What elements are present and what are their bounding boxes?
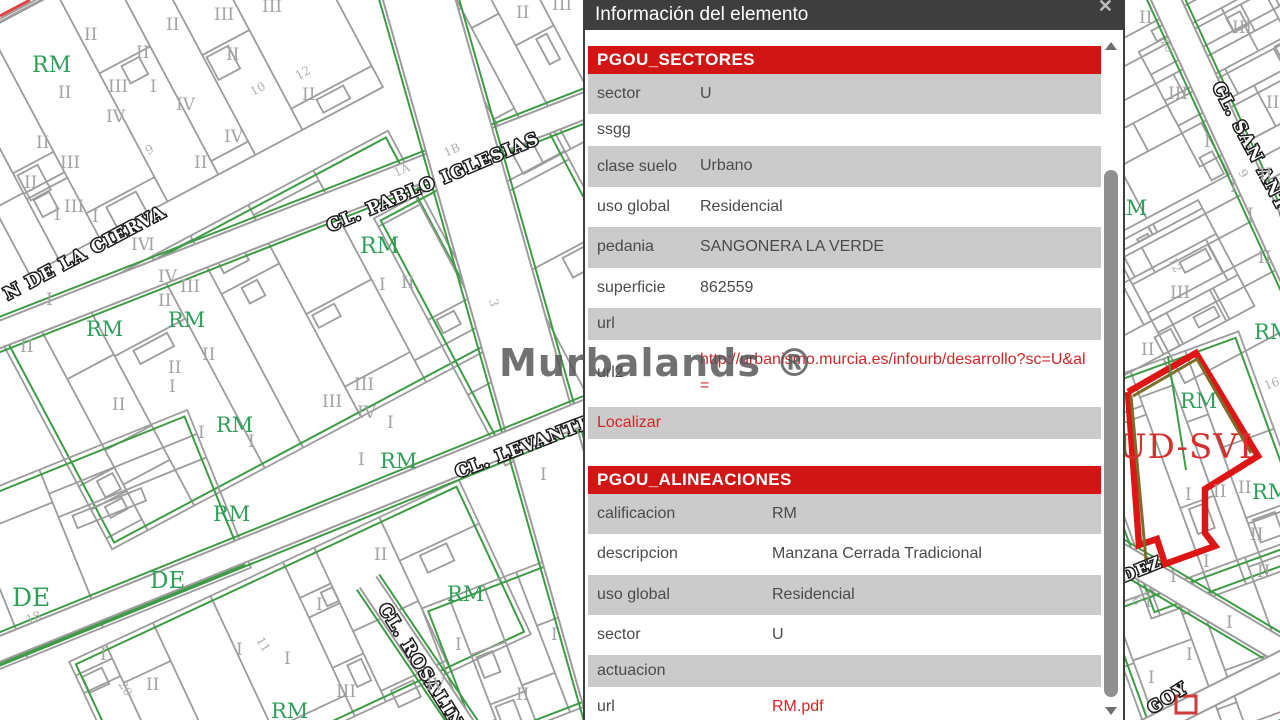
street-number: 6	[1129, 594, 1145, 608]
parcel-numeral: II	[1139, 8, 1152, 28]
parcel-numeral: I	[1247, 205, 1254, 225]
parcel-numeral: II	[168, 358, 181, 378]
info-row: clase sueloUrbano	[588, 146, 1101, 186]
section-header: PGOU_SECTORES	[588, 46, 1101, 74]
parcel-numeral: III	[354, 375, 374, 395]
street-number: 16	[1262, 374, 1280, 392]
street-number: 11	[253, 634, 273, 654]
row-label: clase suelo	[597, 158, 700, 176]
parcel-numeral: I	[100, 645, 107, 665]
street-label: CL. ROSALINDA	[374, 600, 483, 720]
parcel-numeral: II	[516, 685, 529, 705]
panel-content: PGOU_SECTORESsectorUssggclase sueloUrban…	[585, 30, 1101, 720]
parcel-numeral: III	[214, 5, 234, 25]
row-value: U	[772, 622, 1093, 648]
parcel-numeral: IV	[176, 95, 196, 115]
parcel-numeral: I	[198, 423, 205, 443]
info-panel: Información del elemento ✕ PGOU_SECTORES…	[583, 0, 1125, 720]
parcel-numeral: III	[336, 682, 356, 702]
zone-label: RM	[1254, 320, 1280, 344]
parcel-numeral: IV	[426, 675, 446, 695]
close-icon[interactable]: ✕	[1098, 0, 1113, 15]
parcel-numeral: I	[236, 640, 243, 660]
info-row: urlRM.pdf	[588, 687, 1101, 720]
parcel-numeral: I	[248, 432, 255, 452]
parcel-numeral: II	[1266, 93, 1279, 113]
info-row: sectorU	[588, 615, 1101, 655]
parcel-numeral: II	[202, 345, 215, 365]
info-row: url	[588, 308, 1101, 340]
zone-label: RM	[1252, 480, 1280, 504]
scroll-up-arrow-icon[interactable]	[1105, 42, 1117, 50]
row-label: uso global	[597, 198, 700, 216]
row-label: ssgg	[597, 121, 700, 139]
street-number: 9	[143, 142, 156, 158]
street-number: 20	[115, 678, 135, 698]
info-row: pedaniaSANGONERA LA VERDE	[588, 227, 1101, 267]
row-value-link[interactable]: http://urbanismo.murcia.es/infourb/desar…	[700, 347, 1093, 400]
parcel-numeral: I	[1226, 613, 1233, 633]
parcel-numeral: I	[1148, 668, 1155, 688]
row-value: U	[700, 81, 1093, 107]
zone-label: RM	[168, 308, 205, 332]
scroll-down-arrow-icon[interactable]	[1105, 707, 1117, 715]
panel-title: Información del elemento	[595, 4, 808, 25]
parcel-numeral: III	[322, 392, 342, 412]
parcel-numeral: I	[540, 465, 547, 485]
row-value: Manzana Cerrada Tradicional	[772, 541, 1093, 567]
parcel-numeral: I	[92, 207, 99, 227]
parcel-numeral: II	[401, 273, 414, 293]
parcel-numeral: II	[136, 43, 149, 63]
parcel-numeral: II	[36, 133, 49, 153]
info-row: descripcionManzana Cerrada Tradicional	[588, 534, 1101, 574]
parcel-numeral: I	[1185, 485, 1192, 505]
row-label: pedania	[597, 238, 700, 256]
parcel-numeral: II	[158, 291, 171, 311]
zone-label: RM	[32, 53, 71, 78]
zone-label: RM	[213, 502, 250, 526]
parcel-numeral: III	[64, 197, 84, 217]
street-number: 10	[248, 79, 268, 99]
info-row: ssgg	[588, 114, 1101, 146]
row-label: actuacion	[597, 662, 772, 680]
row-label: sector	[597, 626, 772, 644]
panel-title-bar: Información del elemento ✕	[585, 0, 1123, 30]
parcel-numeral: II	[58, 83, 71, 103]
row-label: superficie	[597, 279, 700, 297]
row-label: sector	[597, 85, 700, 103]
scroll-thumb[interactable]	[1104, 170, 1118, 697]
row-value: SANGONERA LA VERDE	[700, 234, 1093, 260]
parcel-numeral: III	[60, 153, 80, 173]
parcel-numeral: II	[146, 675, 159, 695]
parcel-numeral: II	[516, 3, 529, 23]
parcel-numeral: I	[1170, 567, 1177, 587]
zone-label: RM	[1180, 389, 1217, 413]
parcel-numeral: III	[262, 0, 282, 17]
parcel-numeral: II	[24, 173, 37, 193]
row-label: descripcion	[597, 545, 772, 563]
row-label: url	[597, 698, 772, 716]
row-label: calificacion	[597, 505, 772, 523]
parcel-numeral: III	[552, 0, 572, 15]
sector-unit-label: UD-SVI	[1118, 427, 1253, 467]
parcel-numeral: II	[1259, 165, 1272, 185]
row-value: Residencial	[700, 194, 1093, 220]
info-row: uso globalResidencial	[588, 187, 1101, 227]
parcel-numeral: II	[1258, 248, 1271, 268]
parcel-numeral: II	[112, 395, 125, 415]
parcel-numeral: IV	[224, 127, 244, 147]
parcel-numeral: III	[108, 77, 128, 97]
row-value: RM	[772, 501, 1093, 527]
parcel-numeral: II	[20, 337, 33, 357]
row-label: url	[597, 315, 700, 333]
parcel-numeral: I	[1230, 177, 1237, 197]
parcel-numeral: I	[1145, 592, 1152, 612]
info-row: sectorU	[588, 74, 1101, 114]
info-row: calificacionRM	[588, 494, 1101, 534]
zone-label: DE	[150, 568, 185, 594]
zone-label: RM	[360, 234, 399, 259]
localizar-action[interactable]: Localizar	[597, 414, 700, 432]
parcel-numeral: II	[374, 545, 387, 565]
info-row: actuacion	[588, 655, 1101, 687]
row-label: uso global	[597, 586, 772, 604]
parcel-numeral: I	[54, 205, 61, 225]
parcel-numeral: IV	[106, 107, 126, 127]
row-value: 862559	[700, 275, 1093, 301]
parcel-numeral: II	[194, 153, 207, 173]
parcel-numeral: II	[166, 15, 179, 35]
parcel-numeral: I	[1186, 645, 1193, 665]
parcel-numeral: III	[1168, 84, 1188, 104]
parcel-numeral: I	[46, 290, 53, 310]
parcel-numeral: I	[150, 77, 157, 97]
zone-label: RM	[86, 317, 123, 341]
parcel-numeral: II	[1238, 478, 1251, 498]
row-value-link[interactable]: RM.pdf	[772, 694, 1093, 720]
zone-label: RM	[271, 699, 308, 720]
parcel-numeral: III	[180, 277, 200, 297]
info-row: uso globalResidencial	[588, 575, 1101, 615]
zone-label: DE	[12, 583, 50, 612]
parcel-numeral: IV	[131, 235, 151, 255]
parcel-numeral: I	[1203, 552, 1210, 572]
info-row: url2http://urbanismo.murcia.es/infourb/d…	[588, 340, 1101, 407]
parcel-numeral: II	[1213, 482, 1226, 502]
panel-scrollbar[interactable]	[1101, 30, 1121, 720]
parcel-numeral: I	[358, 450, 365, 470]
parcel-numeral: II	[1141, 340, 1154, 360]
section-gap	[588, 439, 1101, 466]
row-value: Urbano	[700, 153, 1093, 179]
row-label: url2	[597, 364, 700, 382]
parcel-numeral: II	[226, 45, 239, 65]
parcel-numeral: I	[379, 275, 386, 295]
parcel-numeral: II	[302, 85, 315, 105]
parcel-numeral: I	[169, 377, 176, 397]
zone-label: RM	[447, 582, 484, 606]
section-header: PGOU_ALINEACIONES	[588, 466, 1101, 494]
row-value: Residencial	[772, 582, 1093, 608]
parcel-numeral: III	[1232, 18, 1252, 38]
parcel-numeral: II	[84, 25, 97, 45]
parcel-numeral: I	[1204, 132, 1211, 152]
parcel-numeral: II	[1257, 562, 1270, 582]
parcel-numeral: I	[387, 413, 394, 433]
parcel-numeral: IV	[158, 267, 178, 287]
street-number: 12	[293, 63, 313, 83]
info-row: superficie862559	[588, 268, 1101, 308]
parcel-numeral: I	[455, 635, 462, 655]
parcel-numeral: I	[316, 595, 323, 615]
parcel-numeral: III	[1170, 283, 1190, 303]
zone-label: RM	[380, 449, 417, 473]
parcel-numeral: II	[1250, 525, 1263, 545]
info-row: Localizar	[588, 407, 1101, 439]
parcel-numeral: IV	[357, 403, 377, 423]
parcel-numeral: I	[551, 625, 558, 645]
parcel-numeral: I	[284, 649, 291, 669]
